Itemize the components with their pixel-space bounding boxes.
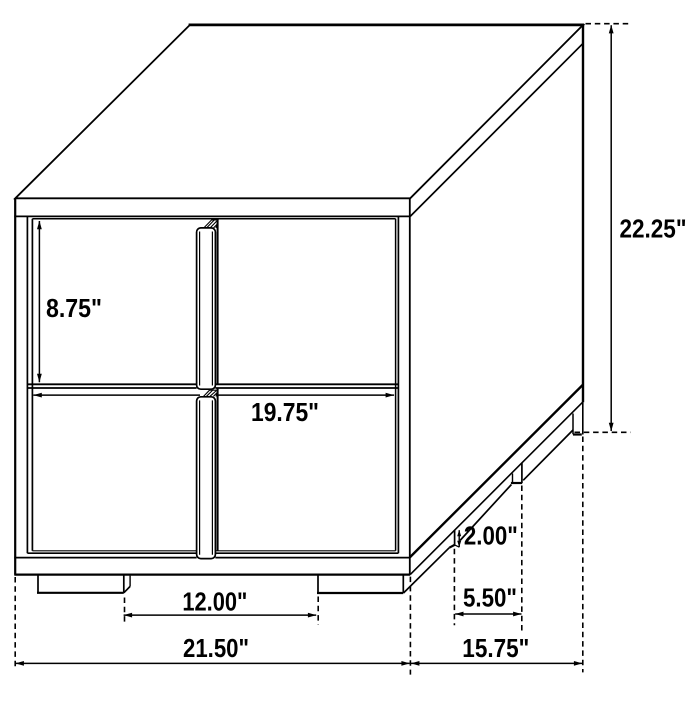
- svg-text:22.25": 22.25": [620, 214, 687, 244]
- svg-text:5.50": 5.50": [463, 583, 517, 613]
- svg-text:15.75": 15.75": [462, 633, 529, 663]
- svg-text:8.75": 8.75": [46, 293, 102, 323]
- svg-text:19.75": 19.75": [251, 397, 319, 427]
- svg-text:2.00": 2.00": [464, 520, 518, 550]
- svg-text:21.50": 21.50": [183, 633, 249, 663]
- svg-text:12.00": 12.00": [182, 586, 247, 616]
